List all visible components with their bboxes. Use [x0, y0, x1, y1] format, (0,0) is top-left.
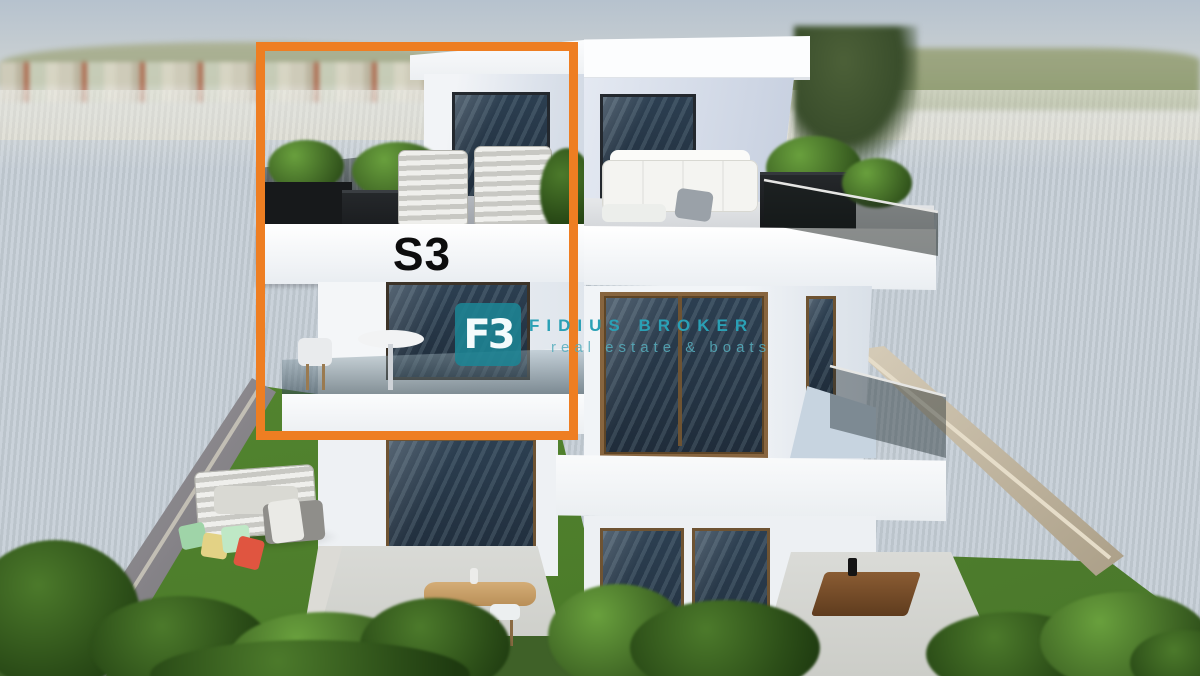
brand-tagline: real estate & boats: [551, 339, 771, 356]
real-estate-render: S3: [0, 0, 1200, 676]
unit-highlight-box: [256, 42, 578, 440]
rooftop-railing-glass: [764, 180, 938, 256]
watermark: F3 FIDIUS BROKER real estate & boats: [455, 303, 755, 373]
ottoman-blanket: [267, 498, 305, 544]
fidius-broker-logo: F3: [455, 303, 521, 366]
logo-monogram: F3: [463, 312, 512, 358]
brand-name: FIDIUS BROKER: [529, 316, 754, 336]
